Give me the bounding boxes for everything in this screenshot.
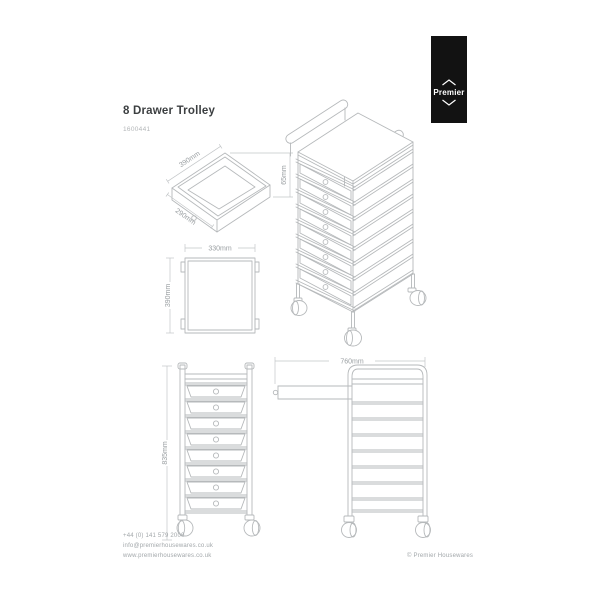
brand-logo-inner: Premier (433, 78, 464, 107)
footer-contact-block: +44 (0) 141 579 2000 info@premierhousewa… (123, 531, 213, 561)
drawer-row (185, 447, 247, 461)
persp-top-surface (298, 113, 413, 184)
footer-phone: +44 (0) 141 579 2000 (123, 531, 213, 541)
drawer-row (185, 415, 247, 429)
pulled-out-drawer (273, 386, 352, 399)
drawer-row (185, 479, 247, 493)
footer-copyright: © Premier Housewares (407, 553, 473, 559)
dim-label-top-width: 330mm (208, 246, 232, 253)
brand-logo: Premier (431, 36, 467, 123)
product-code: 1600441 (123, 126, 150, 133)
chevron-down-icon (440, 98, 458, 107)
drawer-row (185, 463, 247, 477)
side-casters (342, 516, 431, 538)
front-height-dimension: 835mm (162, 366, 172, 540)
drawer-row (185, 399, 247, 413)
persp-legs-casters (291, 274, 426, 346)
dim-label-top-depth: 390mm (165, 284, 172, 308)
top-view-body (181, 258, 259, 333)
caster-wheel (342, 523, 357, 538)
front-view-drawing: 835mm (140, 352, 280, 552)
page-title: 8 Drawer Trolley (123, 105, 215, 117)
drawer-row (185, 495, 247, 509)
top-depth-dimension: 390mm (165, 258, 174, 333)
top-view-drawing: 330mm 390mm (150, 236, 280, 338)
dim-label-front-height: 835mm (162, 441, 169, 465)
drawer-row (185, 383, 247, 397)
drawer-row (185, 431, 247, 445)
side-view-drawing: 760mm (265, 348, 460, 563)
dim-label-tray-depth: 290mm (174, 208, 197, 227)
drawer-knob (273, 390, 277, 394)
dim-label-side-extended: 760mm (340, 359, 364, 366)
perspective-drawing (283, 98, 435, 350)
side-frame (348, 365, 427, 516)
footer-website: www.premierhousewares.co.uk (123, 551, 213, 561)
corner-tab (181, 319, 185, 329)
corner-tab (255, 319, 259, 329)
caster-wheel (416, 523, 431, 538)
top-width-dimension: 330mm (185, 244, 255, 253)
side-runners (352, 402, 423, 512)
side-extended-dimension: 760mm (275, 357, 425, 384)
footer-email: info@premierhousewares.co.uk (123, 541, 213, 551)
chevron-up-icon (440, 78, 458, 87)
spec-sheet-page: 8 Drawer Trolley 1600441 Premier 39 (0, 0, 600, 600)
brand-name: Premier (433, 88, 464, 97)
corner-tab (181, 262, 185, 272)
corner-tab (255, 262, 259, 272)
front-drawers (185, 383, 247, 513)
